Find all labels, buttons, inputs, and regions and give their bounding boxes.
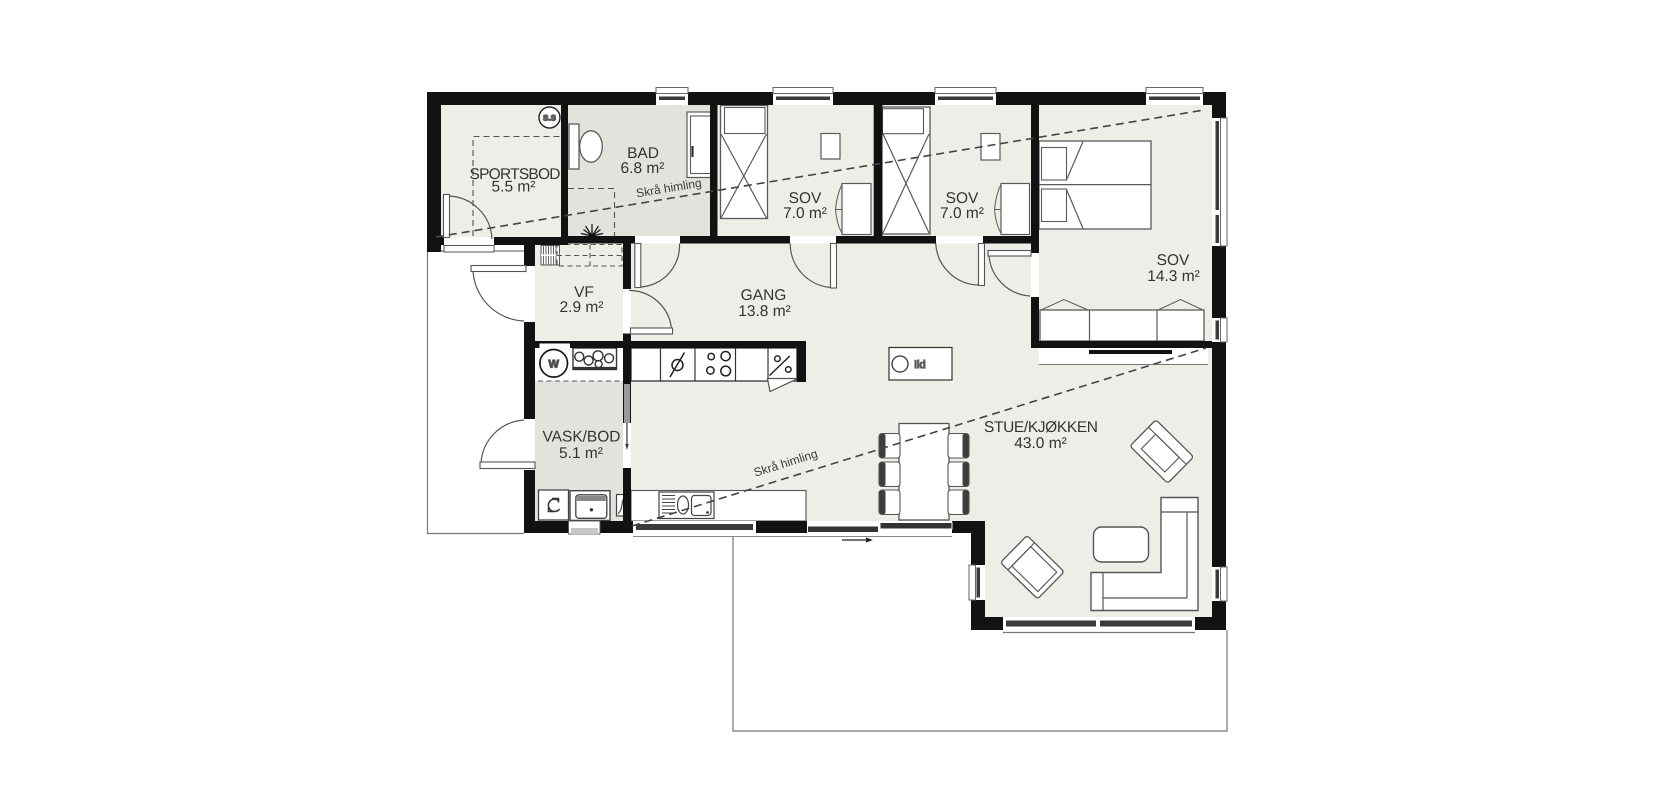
svg-text:GANG: GANG <box>741 287 787 304</box>
svg-text:43.0 m²: 43.0 m² <box>1014 435 1067 452</box>
svg-text:13.8 m²: 13.8 m² <box>738 303 791 320</box>
svg-text:7.0 m²: 7.0 m² <box>783 205 827 222</box>
svg-text:SOV: SOV <box>1157 252 1190 269</box>
svg-text:14.3 m²: 14.3 m² <box>1147 268 1200 285</box>
svg-text:6.8 m²: 6.8 m² <box>621 160 665 177</box>
svg-text:Ild: Ild <box>914 359 926 371</box>
svg-text:W: W <box>549 359 560 371</box>
svg-text:STUE/KJØKKEN: STUE/KJØKKEN <box>984 419 1098 436</box>
svg-text:7.0 m²: 7.0 m² <box>940 205 984 222</box>
svg-text:2.9 m²: 2.9 m² <box>560 299 604 316</box>
svg-text:S.S: S.S <box>543 114 557 123</box>
svg-text:5.1 m²: 5.1 m² <box>559 445 603 462</box>
svg-text:5.5 m²: 5.5 m² <box>492 179 536 196</box>
svg-text:VASK/BOD: VASK/BOD <box>543 429 621 446</box>
